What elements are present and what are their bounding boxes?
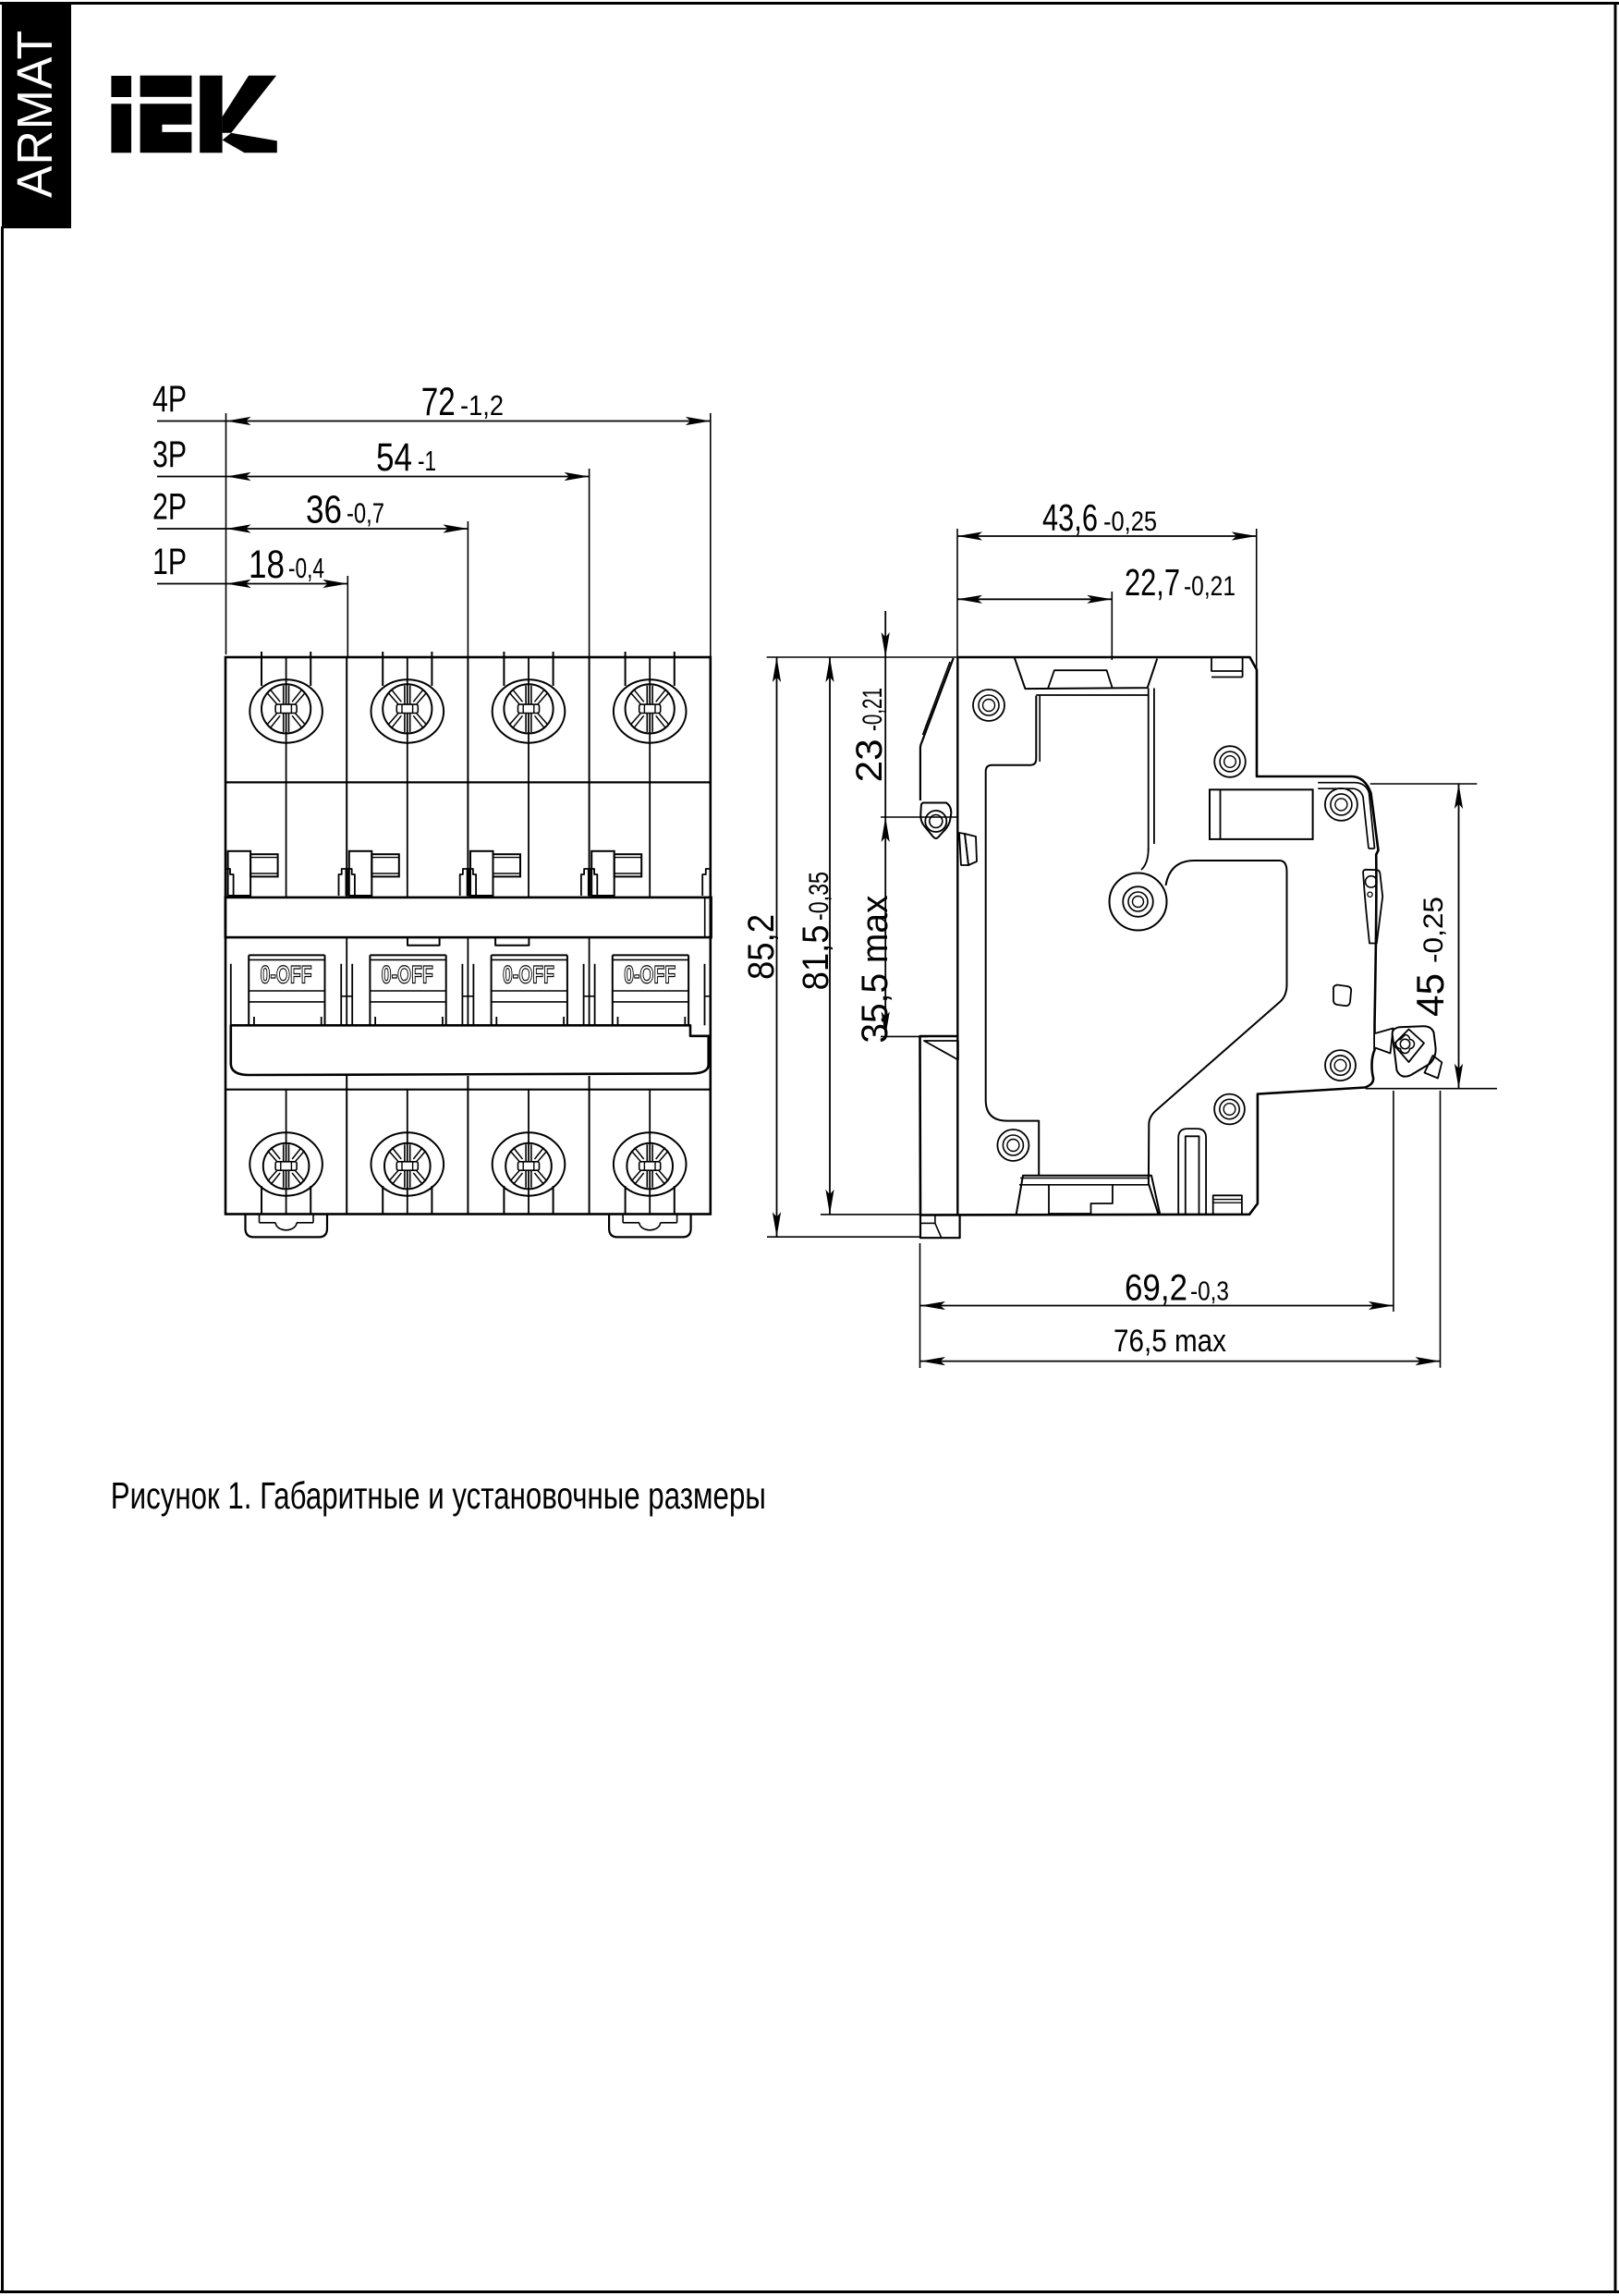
svg-text:-1: -1 [418, 445, 436, 477]
svg-text:-1,2: -1,2 [460, 389, 504, 421]
svg-text:1P: 1P [152, 542, 187, 582]
svg-text:-0,21: -0,21 [858, 688, 888, 731]
svg-text:2P: 2P [152, 487, 187, 528]
svg-text:35,5 max: 35,5 max [855, 896, 895, 1044]
svg-text:54: 54 [376, 435, 412, 480]
svg-text:-0,35: -0,35 [804, 872, 834, 921]
svg-text:72: 72 [421, 380, 456, 424]
svg-text:18: 18 [249, 543, 285, 587]
svg-text:23: 23 [849, 739, 890, 782]
svg-text:Рисунок 1. Габаритные и устано: Рисунок 1. Габаритные и установочные раз… [111, 1474, 766, 1517]
svg-text:ARMAT: ARMAT [7, 30, 63, 198]
svg-text:-0,3: -0,3 [1190, 1277, 1229, 1307]
svg-text:-0,21: -0,21 [1184, 571, 1236, 602]
svg-text:-0,25: -0,25 [1103, 507, 1157, 537]
svg-text:-0,25: -0,25 [1418, 897, 1449, 963]
svg-text:36: 36 [306, 488, 342, 532]
svg-text:0-OFF: 0-OFF [382, 961, 433, 989]
svg-text:81,5: 81,5 [796, 924, 836, 990]
svg-text:45: 45 [1408, 973, 1452, 1017]
svg-text:4P: 4P [152, 379, 187, 420]
svg-text:0-OFF: 0-OFF [624, 961, 676, 989]
svg-text:-0,7: -0,7 [347, 497, 384, 530]
svg-text:69,2: 69,2 [1125, 1268, 1187, 1309]
svg-text:0-OFF: 0-OFF [261, 961, 312, 989]
svg-text:85,2: 85,2 [741, 914, 782, 980]
svg-text:-0,4: -0,4 [288, 552, 324, 584]
svg-text:0-OFF: 0-OFF [503, 961, 554, 989]
svg-text:43,6: 43,6 [1042, 496, 1098, 539]
svg-text:22,7: 22,7 [1125, 561, 1180, 604]
svg-text:76,5 max: 76,5 max [1114, 1324, 1226, 1359]
svg-text:3P: 3P [152, 434, 187, 475]
